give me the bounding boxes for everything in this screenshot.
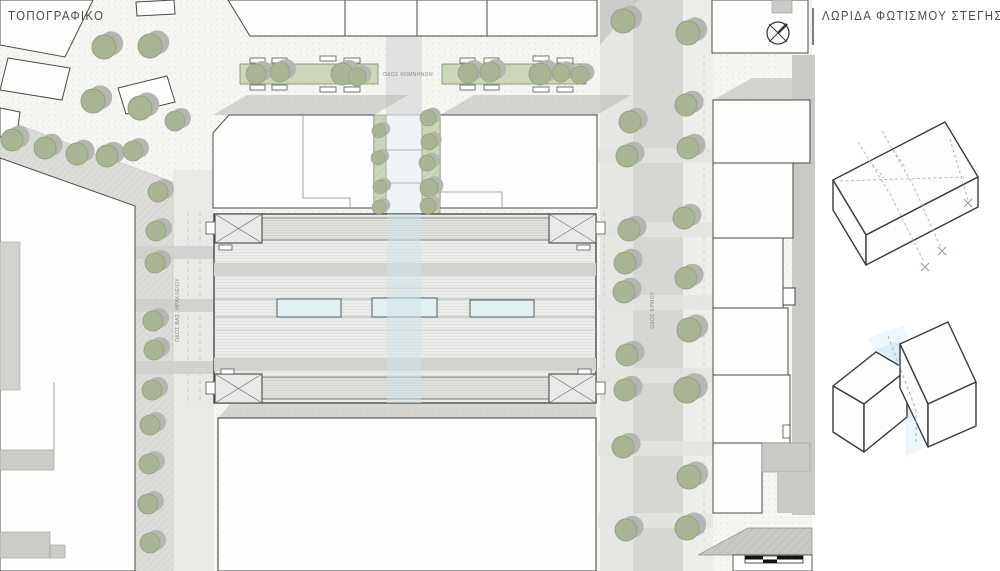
street-label-right: ΟΔΟΣ ΕΡΜΟΥ [650,291,656,329]
scale-bar [745,556,803,563]
north-arrow-icon [767,22,789,44]
axon-diagram-light-path [815,100,1000,300]
west-block [0,158,135,571]
axon-diagram-split-volumes [815,310,1000,490]
mid-building-west [213,115,374,208]
panel-title: ΛΩΡΙΔΑ ΦΩΤΙΣΜΟΥ ΣΤΕΓΗΣ [822,8,1000,23]
south-building [218,418,596,571]
street-label-left: ΟΔΟΣ ΒΑΣ. ΗΡΑΚΛΕΙΟΥ [175,278,181,342]
street-label-top: ΟΔΟΣ ΚΟΜΝΗΝΩΝ [383,72,433,78]
mid-building-east [440,115,597,208]
mid-block [213,115,597,214]
market-building [206,214,605,403]
passage-walkway [386,115,422,214]
site-plan-sheet: ΟΔΟΣ ΚΟΜΝΗΝΩΝ ΟΔΟΣ ΒΑΣ. ΗΡΑΚΛΕΙΟΥ ΟΔΟΣ Ε… [0,0,1000,571]
plan-title: ΤΟΠΟΓΡΑΦΙΚΟ [8,8,104,23]
roof-lighting-strip [387,214,421,403]
plan-drawing: ΟΔΟΣ ΚΟΜΝΗΝΩΝ ΟΔΟΣ ΒΑΣ. ΗΡΑΚΛΕΙΟΥ ΟΔΟΣ Ε… [0,0,815,571]
